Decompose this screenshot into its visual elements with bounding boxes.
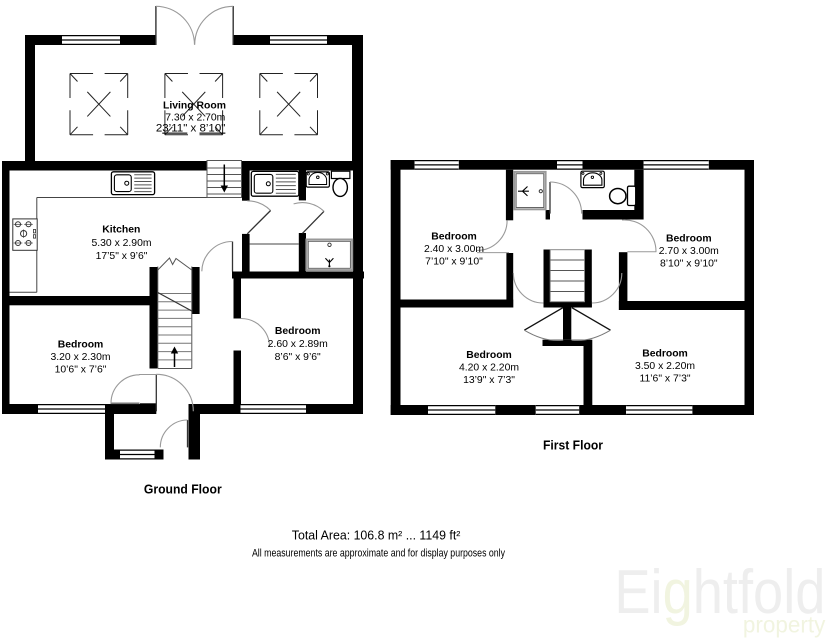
- svg-text:Bedroom: Bedroom: [431, 232, 477, 243]
- svg-text:Bedroom: Bedroom: [58, 340, 104, 351]
- svg-text:2.40 x 3.00m: 2.40 x 3.00m: [424, 244, 484, 255]
- svg-text:5.30 x 2.90m: 5.30 x 2.90m: [91, 238, 151, 249]
- svg-text:23’11" x 8’10": 23’11" x 8’10": [156, 123, 226, 135]
- svg-text:Bedroom: Bedroom: [666, 234, 712, 245]
- svg-text:Bedroom: Bedroom: [466, 350, 512, 361]
- svg-text:13’9" x 7’3": 13’9" x 7’3": [463, 375, 515, 386]
- svg-text:17’5" x 9’6": 17’5" x 9’6": [96, 251, 148, 262]
- svg-text:3.20 x 2.30m: 3.20 x 2.30m: [50, 352, 110, 363]
- svg-text:8’10" x 9’10": 8’10" x 9’10": [660, 259, 718, 270]
- svg-text:8’6" x 9’6": 8’6" x 9’6": [275, 352, 321, 363]
- svg-text:10’6" x 7’6": 10’6" x 7’6": [55, 365, 107, 376]
- svg-text:2.70 x 3.00m: 2.70 x 3.00m: [659, 246, 719, 257]
- svg-text:Living Room: Living Room: [163, 100, 226, 111]
- svg-text:4.20 x 2.20m: 4.20 x 2.20m: [459, 363, 519, 374]
- svg-text:All measurements are approxima: All measurements are approximate and for…: [252, 548, 506, 560]
- svg-text:Ground Floor: Ground Floor: [144, 482, 222, 496]
- svg-text:Total Area: 106.8 m² ... 1149: Total Area: 106.8 m² ... 1149 ft²: [292, 528, 461, 543]
- svg-text:First Floor: First Floor: [543, 439, 603, 453]
- svg-text:2.60 x 2.89m: 2.60 x 2.89m: [268, 339, 328, 350]
- svg-text:Kitchen: Kitchen: [102, 225, 140, 236]
- svg-text:7’10" x 9’10": 7’10" x 9’10": [425, 257, 483, 268]
- svg-text:11’6" x 7’3": 11’6" x 7’3": [639, 374, 690, 385]
- svg-text:3.50 x 2.20m: 3.50 x 2.20m: [635, 361, 695, 372]
- svg-text:Bedroom: Bedroom: [275, 326, 321, 337]
- svg-text:Bedroom: Bedroom: [642, 349, 688, 360]
- svg-text:property: property: [743, 612, 826, 638]
